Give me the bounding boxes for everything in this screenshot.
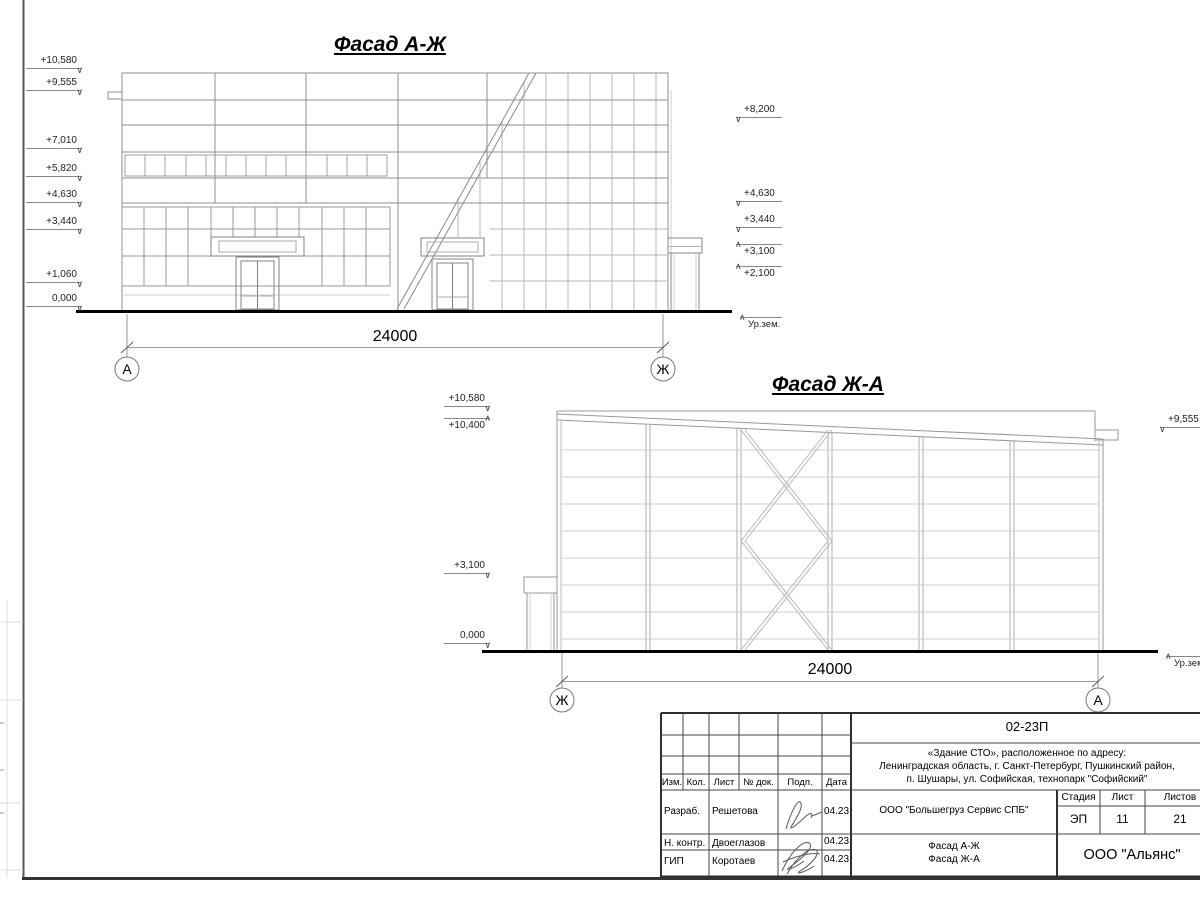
elevation-mark: +4,630∨ — [26, 189, 82, 203]
axis-zh-facade2: Ж — [550, 692, 574, 708]
name-razrab: Решетова — [712, 806, 776, 817]
elev-arrow-up-icon: ∧ — [739, 314, 746, 321]
titleblock-address-line1: «Здание СТО», расположенное по адресу: — [853, 748, 1200, 759]
elev-arrow-down-icon: ∨ — [1159, 426, 1166, 433]
titleblock-firm: ООО "Альянс" — [1057, 847, 1200, 863]
elevation-mark: +10,580∨ — [444, 393, 490, 407]
elevation-mark: +3,440∨ — [26, 216, 82, 230]
rev-col-data: Дата — [822, 777, 851, 788]
elev-arrow-down-icon: ∨ — [735, 116, 742, 123]
name-gip: Коротаев — [712, 856, 776, 867]
elevation-mark: 0,000∨ — [26, 293, 82, 307]
elev-arrow-up-icon: ∧ — [484, 415, 491, 422]
elevation-mark: +3,100∨ — [444, 560, 490, 574]
elev-arrow-down-icon: ∨ — [76, 175, 83, 182]
panel-lines — [561, 450, 1099, 639]
date-nkontr: 04.23 — [822, 836, 851, 847]
axis-a-facade1: А — [115, 361, 139, 377]
left-canopy — [524, 577, 557, 650]
curtain-wall-grid — [458, 73, 668, 311]
elevation-mark: +9,555∨ — [1160, 414, 1200, 428]
sheet-label: Лист — [1100, 792, 1145, 803]
elev-arrow-up-icon: ∧ — [735, 263, 742, 270]
facade1-title: Фасад А-Ж — [295, 33, 485, 57]
window-ribbon — [125, 155, 387, 176]
axis-zh-facade1: Ж — [651, 361, 675, 377]
rev-col-list: Лист — [709, 777, 739, 788]
elevation-mark: +3,100∧ — [736, 244, 782, 259]
signature-strokes — [782, 802, 822, 874]
elevation-mark: +1,060∨ — [26, 269, 82, 283]
titleblock-company: ООО "Большегруз Сервис СПБ" — [851, 805, 1057, 816]
name-nkontr: Двоеглазов — [712, 838, 776, 849]
role-gip: ГИП — [664, 856, 708, 867]
stage-label: Стадия — [1057, 792, 1100, 803]
role-razrab: Разраб. — [664, 806, 708, 817]
dimension-1 — [115, 314, 675, 381]
elev-arrow-up-icon: ∧ — [735, 241, 742, 248]
stair-diagonal — [397, 73, 536, 309]
elevation-mark: +8,200∨ — [736, 104, 782, 118]
elevation-mark: +4,630∨ — [736, 188, 782, 202]
elevation-mark: +10,400∧ — [444, 418, 490, 433]
elev-arrow-down-icon: ∨ — [76, 89, 83, 96]
elev-arrow-down-icon: ∨ — [76, 281, 83, 288]
sheets-total: 21 — [1145, 812, 1200, 826]
elevation-mark: +7,010∨ — [26, 135, 82, 149]
titleblock-address-line2: Ленинградская область, г. Санкт-Петербур… — [853, 761, 1200, 772]
elev-arrow-down-icon: ∨ — [484, 642, 491, 649]
elev-arrow-down-icon: ∨ — [484, 405, 491, 412]
elev-arrow-up-icon: ∧ — [1165, 653, 1172, 660]
drawing-sheet: Фасад А-Ж Фасад Ж-А 24000 24000 А Ж Ж А … — [0, 0, 1200, 900]
elev-arrow-down-icon: ∨ — [76, 201, 83, 208]
doc-title-line2: Фасад Ж-А — [851, 854, 1057, 865]
elev-arrow-down-icon: ∨ — [76, 228, 83, 235]
ground-level-label: Ур.зем.∧ — [1166, 656, 1200, 671]
doc-title-line1: Фасад А-Ж — [851, 841, 1057, 852]
x-bracing — [741, 430, 832, 650]
rev-col-kol: Кол. — [683, 777, 709, 788]
elevation-mark: +2,100∧ — [736, 266, 782, 281]
elev-arrow-down-icon: ∨ — [76, 305, 83, 312]
elev-arrow-down-icon: ∨ — [76, 67, 83, 74]
axis-a-facade2: А — [1086, 692, 1110, 708]
elevation-mark: 0,000∨ — [444, 630, 490, 644]
side-canopy — [668, 238, 702, 310]
elevation-mark: +10,580∨ — [26, 55, 82, 69]
rev-col-izm: Изм. — [661, 777, 683, 788]
elev-arrow-down-icon: ∨ — [484, 572, 491, 579]
date-gip: 04.23 — [822, 854, 851, 865]
elevation-mark: +5,820∨ — [26, 163, 82, 177]
rev-col-podp: Подп. — [778, 777, 822, 788]
stage-value: ЭП — [1057, 812, 1100, 826]
frame-columns — [646, 424, 1014, 650]
facade2-title: Фасад Ж-А — [733, 373, 923, 397]
elev-arrow-down-icon: ∨ — [735, 200, 742, 207]
role-nkontr: Н. контр. — [664, 838, 708, 849]
elev-arrow-down-icon: ∨ — [735, 226, 742, 233]
date-razrab: 04.23 — [822, 806, 851, 817]
facade1-dimension: 24000 — [350, 328, 440, 346]
sheet-number: 11 — [1100, 812, 1145, 826]
lower-glazing — [122, 207, 390, 295]
titleblock-doc-code: 02-23П — [851, 719, 1200, 734]
sheets-label: Листов — [1145, 792, 1200, 803]
elevation-mark: +3,440∨ — [736, 214, 782, 228]
elev-arrow-down-icon: ∨ — [76, 147, 83, 154]
elevation-mark: +9,555∨ — [26, 77, 82, 91]
ground-level-label: Ур.зем.∧ — [740, 317, 782, 332]
entrance-1 — [211, 237, 304, 310]
facade2-dimension: 24000 — [785, 661, 875, 679]
rev-col-ndok: № док. — [739, 777, 778, 788]
titleblock-address-line3: п. Шушары, ул. Софийская, технопарк "Соф… — [853, 774, 1200, 785]
